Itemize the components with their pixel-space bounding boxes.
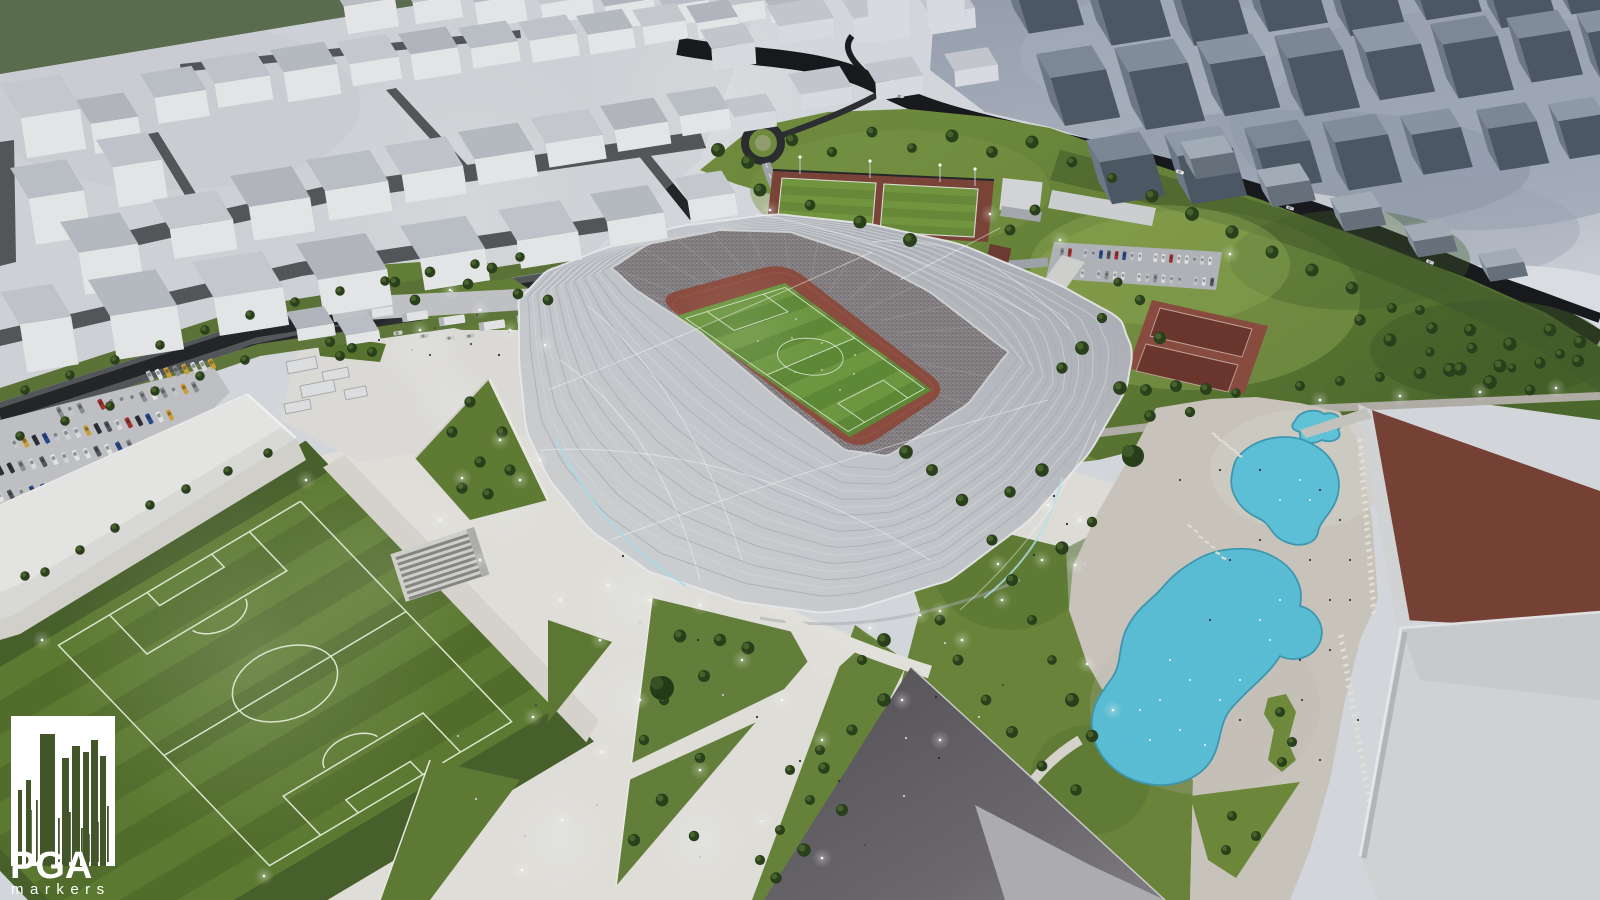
svg-text:markers: markers <box>11 881 111 898</box>
